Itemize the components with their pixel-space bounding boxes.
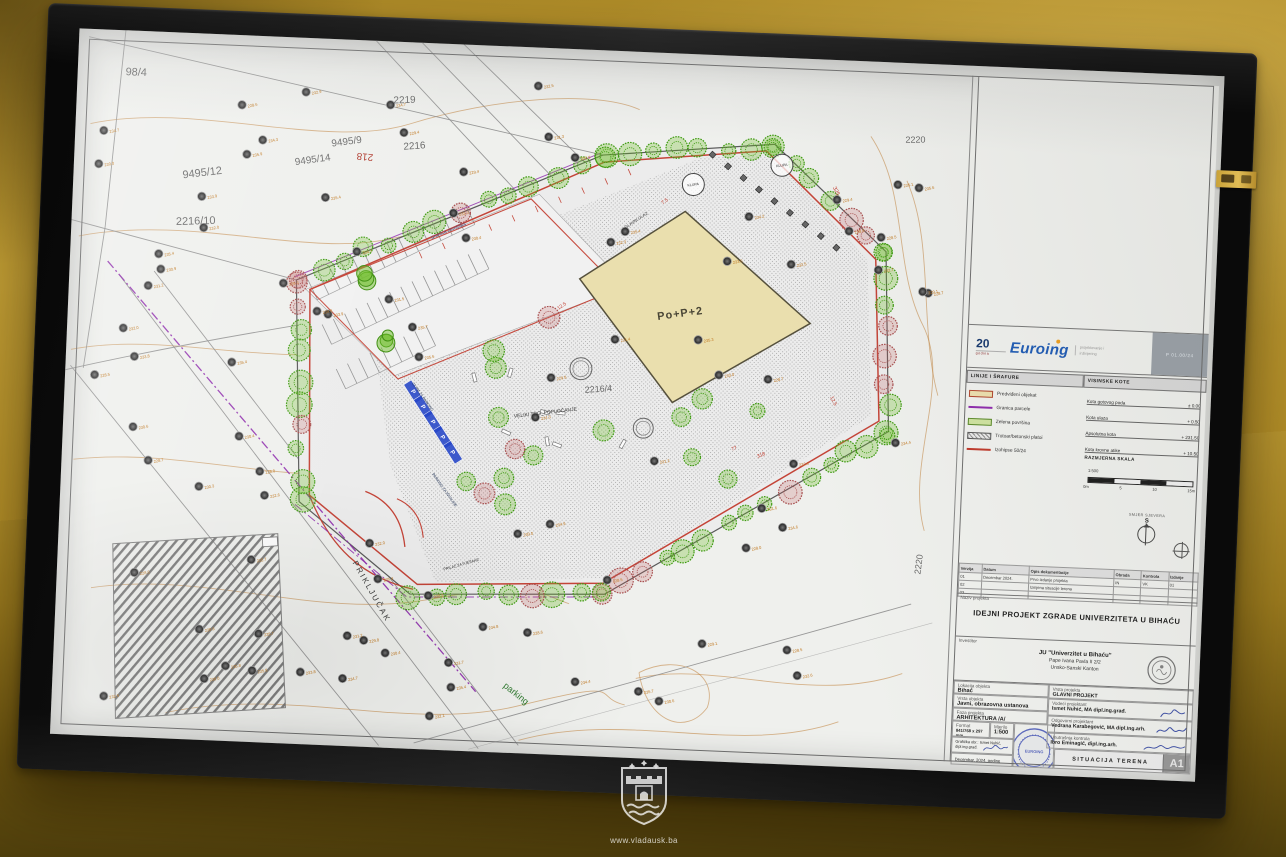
svg-text:235.6: 235.6 bbox=[924, 185, 936, 192]
project-title: IDEJNI PROJEKT ZGRADE UNIVERZITETA U BIH… bbox=[957, 608, 1197, 627]
crosshair-icon bbox=[1173, 543, 1189, 559]
svg-text:228.0: 228.0 bbox=[751, 545, 763, 552]
signature-icon bbox=[1158, 706, 1189, 721]
field-mjerilo: Mjerilo 1:500 bbox=[990, 722, 1015, 739]
svg-text:235.4: 235.4 bbox=[456, 684, 468, 691]
doc-number: P 01.00/24 bbox=[1151, 333, 1209, 377]
svg-text:234.4: 234.4 bbox=[580, 678, 592, 685]
title-block: 20 godina Euroing projektovanje i inžinj… bbox=[950, 76, 1220, 771]
svg-text:231.7: 231.7 bbox=[454, 659, 465, 666]
svg-text:233.8: 233.8 bbox=[305, 669, 317, 676]
svg-text:2216/10: 2216/10 bbox=[176, 215, 216, 228]
svg-text:229.8: 229.8 bbox=[369, 637, 381, 644]
green-swatch bbox=[968, 417, 992, 425]
svg-text:2216: 2216 bbox=[403, 140, 426, 152]
svg-text:2219: 2219 bbox=[393, 95, 416, 107]
svg-text:218: 218 bbox=[356, 150, 374, 163]
svg-text:235.4: 235.4 bbox=[164, 250, 176, 257]
hatch-swatch bbox=[967, 431, 991, 439]
svg-text:231.6: 231.6 bbox=[767, 505, 779, 512]
tv-frame: PPPPP229.8228.5233.9233.3230.0235.3228.7… bbox=[16, 3, 1257, 819]
svg-text:9495/9: 9495/9 bbox=[331, 135, 363, 150]
svg-text:232.0: 232.0 bbox=[128, 325, 140, 332]
purple-line-swatch bbox=[968, 406, 992, 409]
svg-text:232.6: 232.6 bbox=[802, 672, 814, 679]
svg-text:235.7: 235.7 bbox=[643, 688, 654, 695]
watermark: www.vladausk.ba bbox=[594, 758, 694, 845]
svg-text:2216/4: 2216/4 bbox=[584, 383, 612, 395]
svg-text:228.0: 228.0 bbox=[265, 468, 277, 475]
logo-tagline: projektovanje i inžinjering bbox=[1074, 345, 1104, 356]
svg-text:228.5: 228.5 bbox=[100, 371, 112, 378]
svg-text:229.4: 229.4 bbox=[469, 169, 481, 176]
svg-text:234.3: 234.3 bbox=[268, 137, 280, 144]
svg-text:230.6: 230.6 bbox=[664, 698, 676, 705]
svg-text:232.6: 232.6 bbox=[270, 492, 282, 499]
anniversary-years: 20 bbox=[976, 337, 1006, 350]
svg-text:228.7: 228.7 bbox=[153, 457, 164, 464]
field-format: Format 841/768 x 297 mm bbox=[952, 720, 991, 738]
svg-text:235.4: 235.4 bbox=[237, 359, 249, 366]
metadata-grid: Lokacija objekta Bihać Vrsta objekta Jav… bbox=[951, 680, 1194, 772]
north-arrow: SMJER SJEVERA S bbox=[1110, 512, 1183, 550]
building-swatch bbox=[969, 389, 993, 397]
legend-list: Predviđeni objekatGranica parceleZelena … bbox=[966, 386, 1081, 461]
logo-row: 20 godina Euroing projektovanje i inžinj… bbox=[967, 324, 1209, 378]
svg-text:229.1: 229.1 bbox=[707, 640, 719, 647]
svg-text:228.5: 228.5 bbox=[792, 647, 804, 654]
watermark-url: www.vladausk.ba bbox=[594, 836, 694, 845]
svg-text:228.6: 228.6 bbox=[247, 102, 259, 109]
anniversary-mark: 20 godina bbox=[976, 337, 1007, 357]
university-seal-icon bbox=[1144, 652, 1179, 687]
field-datum: Decembar, 2024. godine bbox=[950, 752, 1012, 767]
svg-text:234.4: 234.4 bbox=[900, 439, 912, 446]
signature-icon bbox=[1155, 723, 1188, 738]
svg-text:2220: 2220 bbox=[905, 135, 925, 145]
tv-screen: PPPPP229.8228.5233.9233.3230.0235.3228.7… bbox=[50, 28, 1225, 781]
sheet-title: SITUACIJA TERENA bbox=[1055, 756, 1163, 767]
svg-text:235.4: 235.4 bbox=[330, 194, 342, 201]
svg-text:234.6: 234.6 bbox=[788, 524, 800, 531]
legend-header: LINIJE I ŠRAFURE bbox=[966, 370, 1083, 388]
scale-ratio: 1:500 bbox=[1088, 468, 1099, 473]
red-line-swatch bbox=[967, 448, 991, 451]
coat-of-arms-icon bbox=[613, 758, 675, 830]
svg-text:98/4: 98/4 bbox=[125, 66, 147, 79]
svg-text:231.2: 231.2 bbox=[153, 282, 164, 289]
svg-text:233.8: 233.8 bbox=[139, 353, 151, 360]
svg-text:232.1: 232.1 bbox=[434, 713, 446, 720]
kote-header: VISINSKE KOTE bbox=[1083, 375, 1206, 393]
svg-text:233.9: 233.9 bbox=[207, 193, 219, 200]
svg-text:234.8: 234.8 bbox=[488, 623, 500, 630]
svg-text:231.3: 231.3 bbox=[554, 134, 566, 141]
svg-text:234.7: 234.7 bbox=[109, 127, 120, 134]
svg-text:232.9: 232.9 bbox=[311, 89, 323, 96]
svg-text:230.4: 230.4 bbox=[244, 433, 256, 440]
svg-text:2220: 2220 bbox=[912, 554, 924, 575]
svg-text:232.5: 232.5 bbox=[543, 83, 555, 90]
svg-text:229.4: 229.4 bbox=[409, 129, 421, 136]
svg-text:228.5: 228.5 bbox=[886, 234, 898, 241]
svg-text:230.4: 230.4 bbox=[390, 650, 402, 657]
svg-text:234.7: 234.7 bbox=[348, 675, 359, 682]
scale-header: RAZMJERNA SKALA bbox=[1084, 455, 1134, 462]
signature-icon bbox=[982, 741, 1009, 755]
svg-text:230.6: 230.6 bbox=[138, 423, 150, 430]
svg-text:235.9: 235.9 bbox=[252, 151, 264, 158]
inventory-sticker bbox=[1216, 170, 1257, 189]
sheet-format-badge: A1 bbox=[1162, 754, 1190, 773]
elevation-table: Kota gotovog poda± 0.00Kota ulaza+ 0.50A… bbox=[1085, 391, 1202, 460]
svg-text:230.3: 230.3 bbox=[204, 483, 216, 490]
svg-text:EUROING: EUROING bbox=[1025, 749, 1044, 755]
north-circle-icon bbox=[1137, 525, 1156, 544]
svg-text:229.4: 229.4 bbox=[842, 196, 854, 203]
svg-text:228.6: 228.6 bbox=[533, 629, 545, 636]
svg-text:230.9: 230.9 bbox=[166, 266, 178, 273]
svg-text:230.0: 230.0 bbox=[104, 160, 116, 167]
svg-text:9495/12: 9495/12 bbox=[182, 165, 223, 181]
svg-text:9495/14: 9495/14 bbox=[294, 152, 332, 168]
anniversary-caption: godina bbox=[976, 350, 1006, 357]
svg-text:235.1: 235.1 bbox=[903, 181, 915, 188]
svg-text:parking: parking bbox=[502, 681, 531, 707]
